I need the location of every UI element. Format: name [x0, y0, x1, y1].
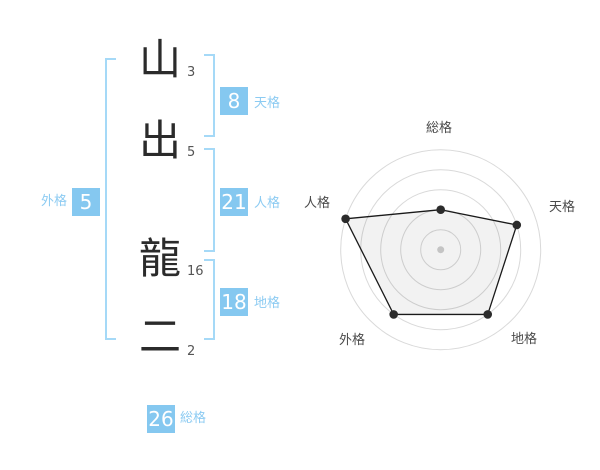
radar-axis-chikaku: 地格 [498, 332, 550, 347]
name-character-3: 龍 [138, 238, 182, 280]
soukaku-label: 総格 [180, 411, 206, 426]
stroke-count-4: 2 [187, 344, 211, 359]
chikaku-bracket [204, 259, 215, 340]
chikaku-value-badge: 18 [220, 288, 248, 316]
gaikaku-value-badge: 5 [72, 188, 100, 216]
radar-axis-gaikaku: 外格 [326, 333, 378, 348]
tenkaku-bracket [204, 54, 215, 137]
jinkaku-bracket [204, 148, 215, 252]
name-character-4: 二 [138, 316, 182, 358]
name-analysis-widget: 山 3 出 5 龍 16 二 2 8 天格 21 人格 18 地格 5 外格 2… [0, 0, 600, 470]
chikaku-label: 地格 [254, 296, 280, 311]
radar-axis-jinkaku: 人格 [291, 196, 343, 211]
jinkaku-value-badge: 21 [220, 188, 248, 216]
name-character-1: 山 [138, 39, 182, 81]
radar-axis-soukaku: 総格 [413, 121, 465, 136]
gaikaku-bracket [105, 58, 116, 340]
soukaku-value-badge: 26 [147, 405, 175, 433]
gaikaku-label: 外格 [41, 194, 67, 209]
name-character-2: 出 [138, 120, 182, 162]
tenkaku-label: 天格 [254, 96, 280, 111]
radar-axis-tenkaku: 天格 [536, 200, 588, 215]
tenkaku-value-badge: 8 [220, 87, 248, 115]
jinkaku-label: 人格 [254, 196, 280, 211]
